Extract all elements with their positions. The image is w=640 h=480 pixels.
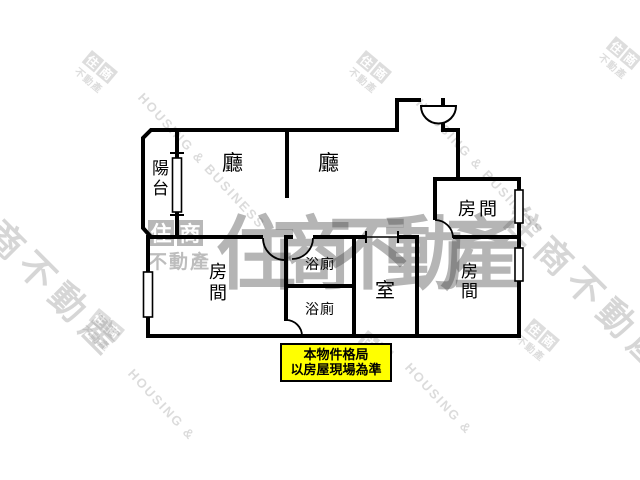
window [144, 272, 153, 317]
room-label-bedroom-top-right: 房間 [458, 195, 500, 221]
door-arc [263, 238, 285, 260]
entrance-door-icon [421, 106, 456, 124]
room-label-bedroom-left: 房間 [204, 262, 230, 304]
sliding-glass-door [173, 158, 182, 212]
disclaimer-line2: 以房屋現場為準 [282, 362, 390, 377]
door-arc [286, 320, 302, 336]
window [515, 190, 523, 223]
room-label-living-left: 廳 [222, 147, 243, 177]
disclaimer-line1: 本物件格局 [282, 347, 390, 362]
room-label-bedroom-bottom-right: 房間 [455, 262, 480, 302]
room-label-balcony: 陽台 [146, 159, 171, 199]
room-label-bathroom-lower: 浴廁 [305, 299, 335, 319]
bathroom-walls [286, 235, 354, 336]
floorplan-image: HOUSING & BUSINESS HOUSING & BUSINESS HO… [0, 0, 640, 480]
door-arc [435, 220, 453, 238]
room-label-bathroom-upper: 浴廁 [305, 254, 335, 274]
disclaimer-box: 本物件格局 以房屋現場為準 [280, 343, 392, 382]
window [515, 248, 523, 281]
floorplan-drawing [0, 0, 640, 480]
room-label-room-center: 室 [375, 274, 395, 303]
room-label-living-right: 廳 [318, 147, 339, 177]
